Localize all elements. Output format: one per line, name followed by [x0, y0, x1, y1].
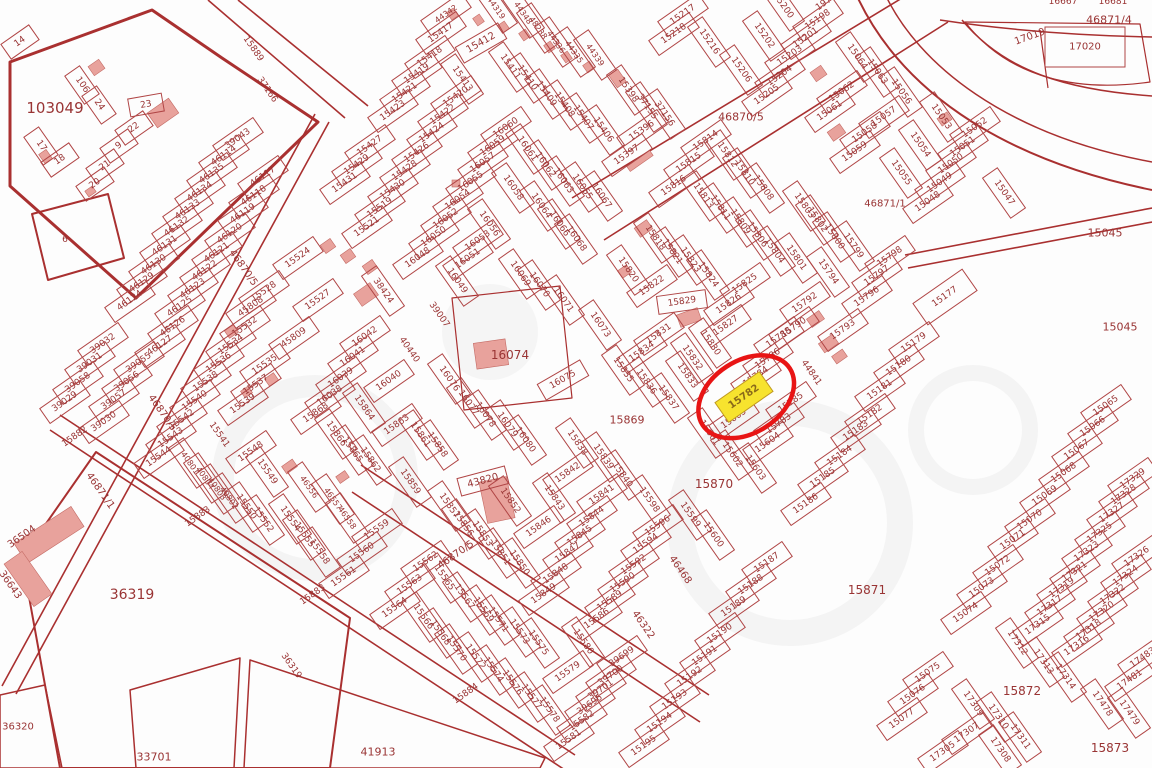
parcel-label: 16074 — [491, 348, 529, 362]
parcel-label: 15873 — [1091, 741, 1129, 755]
parcel-label: 15870 — [695, 477, 733, 491]
parcel-label: 15869 — [610, 414, 645, 427]
parcel-label: 15871 — [848, 583, 886, 597]
parcel-label: 15045 — [1088, 227, 1123, 240]
parcel-label: 103049 — [26, 99, 83, 117]
parcel-label: 16667 — [1049, 0, 1078, 7]
parcel-label: 6 — [62, 235, 68, 245]
parcel-label: 17020 — [1069, 42, 1101, 53]
parcel-label: 16681 — [1099, 0, 1128, 7]
parcel-label: 46871/4 — [1086, 14, 1132, 27]
cadastral-map-screenshot: 1410304910624232291718212061588937166390… — [0, 0, 1152, 768]
parcel-label: 41913 — [361, 746, 396, 759]
parcel-label: 15872 — [1003, 684, 1041, 698]
parcel-label: 46871/1 — [864, 199, 906, 210]
cadastral-map: 1410304910624232291718212061588937166390… — [0, 0, 1152, 768]
parcel-label: 36320 — [2, 722, 34, 733]
parcel-label: 23 — [139, 99, 152, 111]
parcel-label: 15045 — [1103, 321, 1138, 334]
parcel-label: 33701 — [137, 751, 172, 764]
parcel-label: 36319 — [110, 587, 155, 603]
